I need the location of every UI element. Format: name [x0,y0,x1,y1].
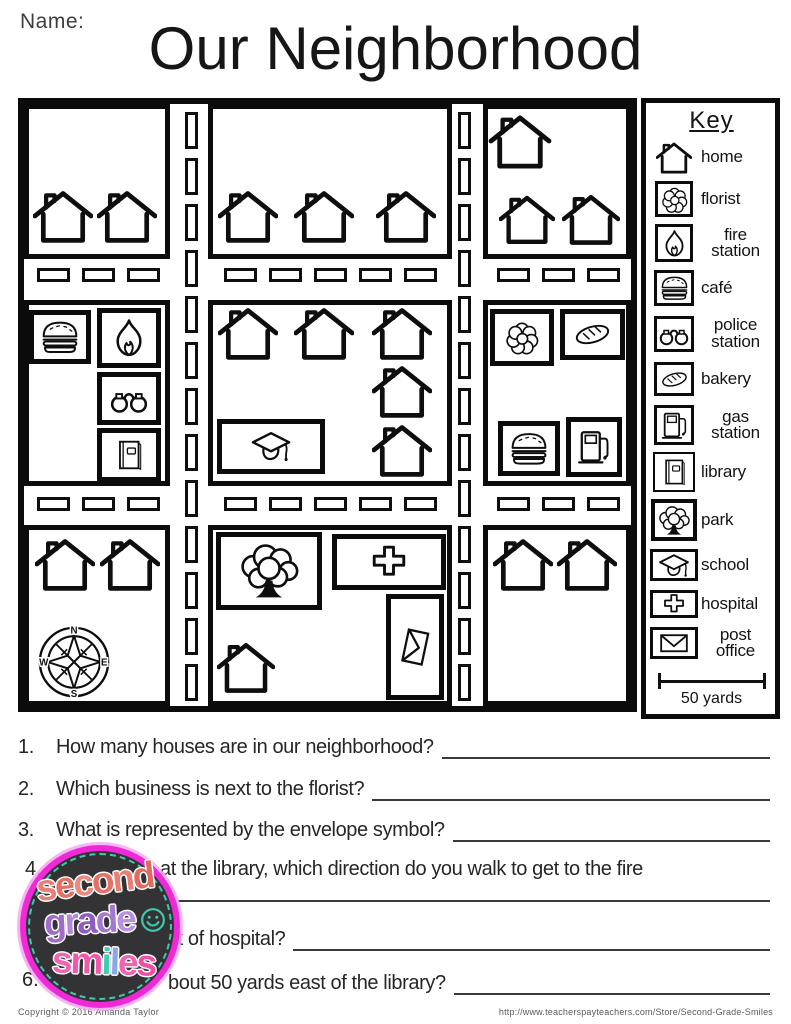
map-library [97,428,161,482]
library-icon [107,438,151,472]
flame-icon [662,229,687,258]
road-dash [185,112,198,149]
road-dash [458,342,471,379]
road-dash [37,497,70,511]
key-label: park [698,510,773,530]
svg-text:N: N [70,626,77,637]
answer-blank [178,888,770,902]
key-item-library: library [650,449,773,495]
road-dash [185,618,198,655]
road-dash [185,250,198,287]
house-icon [488,113,552,169]
road-dash [458,434,471,471]
house-icon [372,305,432,361]
house-icon [33,188,93,244]
road-dash [185,572,198,609]
hospital-icon [342,544,436,580]
map-school [217,419,325,474]
road-dash [185,388,198,425]
question-1: 1. How many houses are in our neighborho… [18,733,770,759]
key-label: hospital [698,594,773,614]
road-dash [458,664,471,701]
house-icon [493,536,553,592]
park-icon [226,542,312,600]
road-dash [185,204,198,241]
road-dash [458,158,471,195]
road-dash [314,497,347,511]
key-item-hospital: hospital [650,585,773,623]
key-symbol-box [653,452,695,492]
answer-blank [372,775,770,801]
road-dash [185,342,198,379]
road-dash [224,268,257,282]
road-dash [497,268,530,282]
house-icon [217,637,275,697]
house-icon [562,191,620,247]
page-title: Our Neighborhood [0,14,791,83]
road-dash [404,497,437,511]
key-label: gasstation [698,409,773,441]
key-item-gas-station: gasstation [650,401,773,449]
key-symbol-box [650,549,698,581]
bread-icon [659,368,690,391]
key-symbol-box [654,405,694,445]
post-office-icon [398,626,433,667]
house-icon [376,188,436,244]
map-key: Key homefloristfirestationcafépolicestat… [641,98,780,719]
key-item-cafe: café [650,266,773,310]
question-number: 3. [18,819,56,842]
question-2: 2. Which business is next to the florist… [18,775,770,801]
question-text: at the library, which direction do you w… [160,858,643,881]
key-label: florist [698,189,773,209]
key-symbol-box [654,362,694,396]
second-grade-smiles-logo: second grade smiles [20,845,180,1008]
map-florist [490,309,554,366]
road-dash [359,497,392,511]
svg-text:S: S [71,689,78,700]
house-icon [372,363,432,419]
tree-icon [655,505,693,536]
map-bakery [560,309,625,360]
answer-blank [454,969,770,995]
map-fire-station [97,308,161,368]
house-icon [294,305,354,361]
road-dash [404,268,437,282]
key-label: firestation [698,227,773,259]
house-icon [294,188,354,244]
question-text: What is represented by the envelope symb… [56,819,445,842]
gaspump-icon [660,410,689,441]
answer-blank [453,816,770,842]
key-item-park: park [650,495,773,545]
key-label: postoffice [698,627,773,659]
question-6: bout 50 yards east of the library? [168,969,770,995]
smiley-icon [140,907,166,933]
road-dash [314,268,347,282]
key-symbol-box [655,181,693,217]
road-dash [37,268,70,282]
florist-icon [500,319,544,356]
question-text: How many houses are in our neighborhood? [56,736,434,759]
road-dash [458,480,471,517]
cafe-icon [39,320,81,354]
compass-rose-icon: NESW [35,623,113,701]
house-icon [372,422,432,478]
key-symbol-box [655,224,693,262]
cross-icon [661,593,687,615]
road-dash [127,268,160,282]
road-dash [458,296,471,333]
question-text: st of hospital? [168,928,285,951]
road-dash [185,664,198,701]
map-park [216,532,322,610]
road-dash [185,158,198,195]
road-dash [82,497,115,511]
flower-icon [660,185,689,214]
map-police-station [97,372,161,425]
house-icon [35,536,95,592]
gradcap-icon [657,552,691,579]
map-cafe [29,310,91,364]
map-gas-station [566,417,622,477]
answer-blank [293,925,770,951]
police-station-icon [107,382,151,415]
road-dash [458,572,471,609]
question-number: 1. [18,736,56,759]
key-label: school [698,555,773,575]
road-dash [587,268,620,282]
cafe-icon [508,431,550,466]
road-dash [185,526,198,563]
scale-label: 50 yards [654,690,769,708]
road-dash [458,204,471,241]
key-symbol-box [650,590,698,618]
scale-line [661,680,763,683]
road-dash [269,497,302,511]
question-number: 2. [18,778,56,801]
envelope-icon [659,632,689,654]
key-item-bakery: bakery [650,357,773,401]
key-label: café [698,278,773,298]
road-dash [458,388,471,425]
road-dash [497,497,530,511]
question-3: 3. What is represented by the envelope s… [18,816,770,842]
house-icon [97,188,157,244]
key-label: bakery [698,369,773,389]
neighborhood-map: NESW [18,98,637,712]
svg-text:E: E [101,657,108,668]
road-dash [82,268,115,282]
key-title: Key [650,106,773,136]
key-symbol-box [654,316,694,352]
house-icon [218,188,278,244]
house-icon [656,141,692,174]
store-url: http://www.teacherspayteachers.com/Store… [499,1007,773,1017]
house-icon [100,536,160,592]
key-label: policestation [698,317,773,349]
key-symbol-box [651,499,697,541]
gas-station-icon [576,427,612,467]
map-scale: 50 yards [650,673,773,710]
road-dash [458,526,471,563]
fire-station-icon [107,318,151,358]
road-dash [359,268,392,282]
key-list: homefloristfirestationcafépolicestationb… [650,136,773,673]
key-symbol-box [650,627,698,659]
road-dash [587,497,620,511]
answer-blank [442,733,770,759]
key-item-school: school [650,545,773,585]
road-dash [269,268,302,282]
svg-text:W: W [39,657,49,668]
road-dash [127,497,160,511]
key-item-post-office: postoffice [650,623,773,663]
road-dash [185,296,198,333]
logo-word-grade: grade [43,898,136,945]
house-icon [499,191,555,247]
map-cafe [498,421,560,476]
key-label: library [698,462,773,482]
bakery-icon [570,319,615,350]
scale-bar [658,673,766,689]
worksheet-page: Name: Our Neighborhood NESW Key homeflor… [0,0,791,1024]
copyright-text: Copyright © 2016 Amanda Taylor [18,1007,159,1017]
key-label: home [698,147,773,167]
house-icon [557,536,617,592]
road-dash [224,497,257,511]
key-symbol-box [654,270,694,306]
smiley-icon [140,907,166,938]
key-item-fire-station: firestation [650,220,773,266]
scale-tick [763,673,766,689]
road-dash [458,250,471,287]
house-icon [218,305,278,361]
map-post-office [386,594,444,700]
book-icon [661,457,687,487]
key-item-florist: florist [650,178,773,220]
road-dash [542,268,575,282]
map-hospital [332,534,446,590]
road-dash [458,112,471,149]
question-text: Which business is next to the florist? [56,778,364,801]
question-5: st of hospital? [168,925,770,951]
road-dash [458,618,471,655]
logo-word-smiles: smiles [51,939,156,985]
school-icon [227,429,315,464]
question-text: bout 50 yards east of the library? [168,972,446,995]
key-item-home: home [650,136,773,178]
road-dash [542,497,575,511]
road-dash [185,434,198,471]
road-dash [185,480,198,517]
key-item-police-station: policestation [650,310,773,357]
burger-icon [659,275,690,301]
cuffs-icon [658,321,690,347]
question-4: at the library, which direction do you w… [160,858,770,881]
